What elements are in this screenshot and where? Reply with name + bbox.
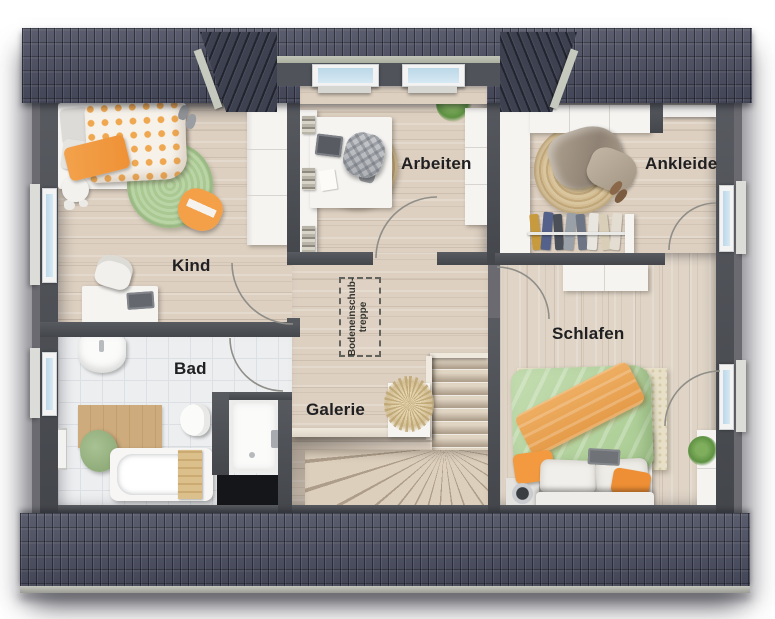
door-swing-arcs bbox=[0, 0, 775, 619]
kind-door-arc bbox=[232, 263, 293, 324]
room-label-bad: Bad bbox=[174, 359, 207, 379]
room-label-kind: Kind bbox=[172, 256, 211, 276]
arbeiten-door-arc bbox=[376, 197, 437, 258]
schlafen-window-swing-arc bbox=[665, 371, 720, 426]
floor-plan-canvas: Bodeneinschub- treppe bbox=[0, 0, 775, 619]
room-label-galerie: Galerie bbox=[306, 400, 365, 420]
schlafen-door-arc bbox=[497, 267, 549, 319]
room-label-schlafen: Schlafen bbox=[552, 324, 624, 344]
room-label-arbeiten: Arbeiten bbox=[401, 154, 472, 174]
room-label-ankleide: Ankleide bbox=[645, 154, 717, 174]
ankleide-door-arc bbox=[669, 203, 716, 250]
bad-door-arc bbox=[230, 338, 283, 391]
